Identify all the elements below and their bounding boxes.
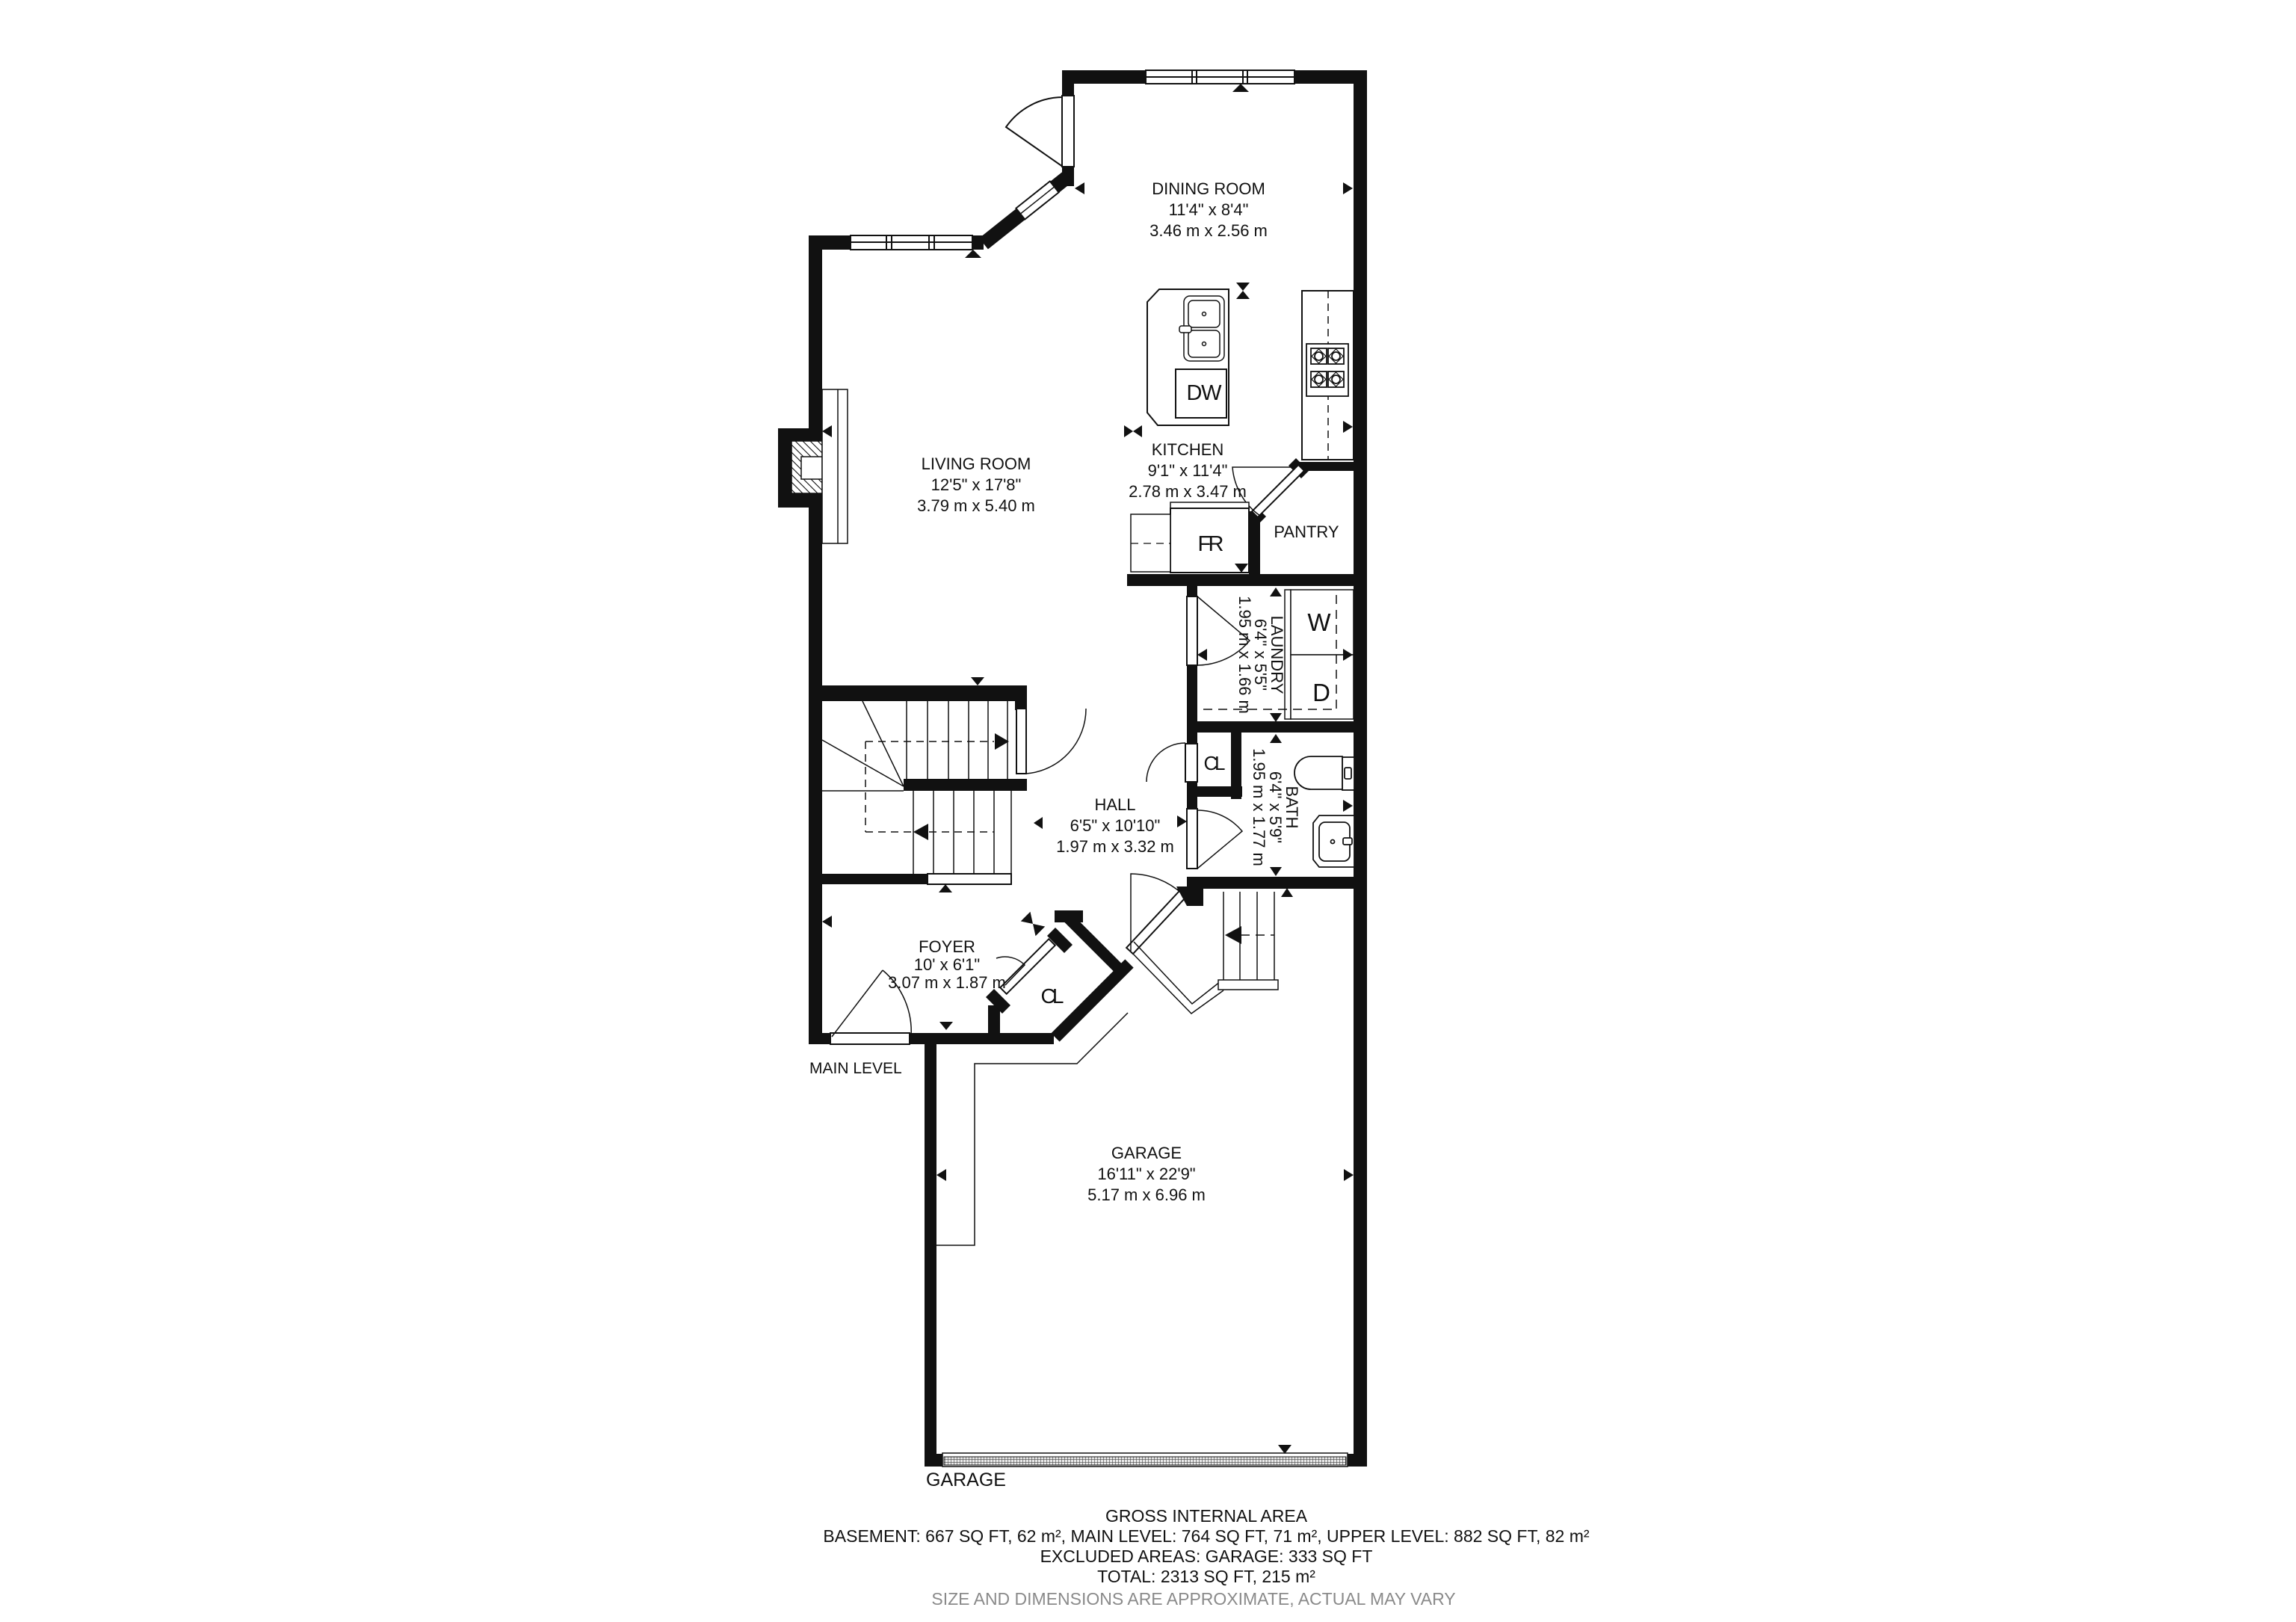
svg-text:HALL: HALL [1094, 795, 1135, 814]
svg-text:GROSS INTERNAL AREA: GROSS INTERNAL AREA [1105, 1506, 1308, 1526]
svg-text:TOTAL: 2313 SQ FT, 215 m²: TOTAL: 2313 SQ FT, 215 m² [1097, 1567, 1315, 1586]
svg-text:2.78 m x 3.47 m: 2.78 m x 3.47 m [1129, 482, 1247, 501]
svg-text:GARAGE: GARAGE [926, 1470, 1006, 1490]
svg-text:W: W [1307, 608, 1331, 636]
svg-text:FOYER: FOYER [919, 937, 975, 956]
svg-text:11'4" x 8'4": 11'4" x 8'4" [1169, 200, 1249, 219]
svg-text:DINING ROOM: DINING ROOM [1152, 179, 1265, 198]
svg-text:SIZE AND DIMENSIONS ARE APPROX: SIZE AND DIMENSIONS ARE APPROXIMATE, ACT… [931, 1589, 1455, 1609]
svg-text:5.17 m x 6.96 m: 5.17 m x 6.96 m [1087, 1185, 1206, 1204]
svg-text:3.46 m x 2.56 m: 3.46 m x 2.56 m [1149, 221, 1268, 240]
svg-text:12'5" x 17'8": 12'5" x 17'8" [931, 475, 1022, 494]
svg-text:9'1" x 11'4": 9'1" x 11'4" [1148, 461, 1228, 480]
svg-text:MAIN LEVEL: MAIN LEVEL [809, 1060, 902, 1077]
svg-text:6'5" x 10'10": 6'5" x 10'10" [1070, 816, 1161, 835]
svg-text:1.97 m x 3.32 m: 1.97 m x 3.32 m [1056, 837, 1174, 856]
svg-text:CL: CL [1204, 752, 1226, 774]
svg-text:PANTRY: PANTRY [1274, 522, 1339, 541]
svg-text:GARAGE: GARAGE [1111, 1144, 1182, 1162]
svg-text:16'11" x 22'9": 16'11" x 22'9" [1097, 1165, 1195, 1183]
svg-text:D: D [1312, 679, 1330, 706]
svg-text:LIVING ROOM: LIVING ROOM [922, 454, 1031, 473]
svg-text:1.95 m x 1.66 m: 1.95 m x 1.66 m [1235, 596, 1254, 714]
svg-text:KITCHEN: KITCHEN [1152, 440, 1224, 459]
svg-text:BASEMENT: 667 SQ FT, 62 m², MA: BASEMENT: 667 SQ FT, 62 m², MAIN LEVEL: … [823, 1526, 1589, 1546]
svg-text:DW: DW [1187, 381, 1223, 405]
svg-text:1.95 m x 1.77 m: 1.95 m x 1.77 m [1250, 748, 1268, 866]
svg-text:10' x 6'1": 10' x 6'1" [914, 955, 980, 974]
svg-text:EXCLUDED AREAS: GARAGE: 333 SQ: EXCLUDED AREAS: GARAGE: 333 SQ FT [1040, 1547, 1373, 1566]
svg-text:3.79 m x 5.40 m: 3.79 m x 5.40 m [917, 496, 1035, 515]
svg-text:3.07 m x 1.87 m: 3.07 m x 1.87 m [888, 973, 1006, 992]
svg-text:FR: FR [1198, 532, 1224, 556]
svg-text:CL: CL [1041, 984, 1064, 1008]
